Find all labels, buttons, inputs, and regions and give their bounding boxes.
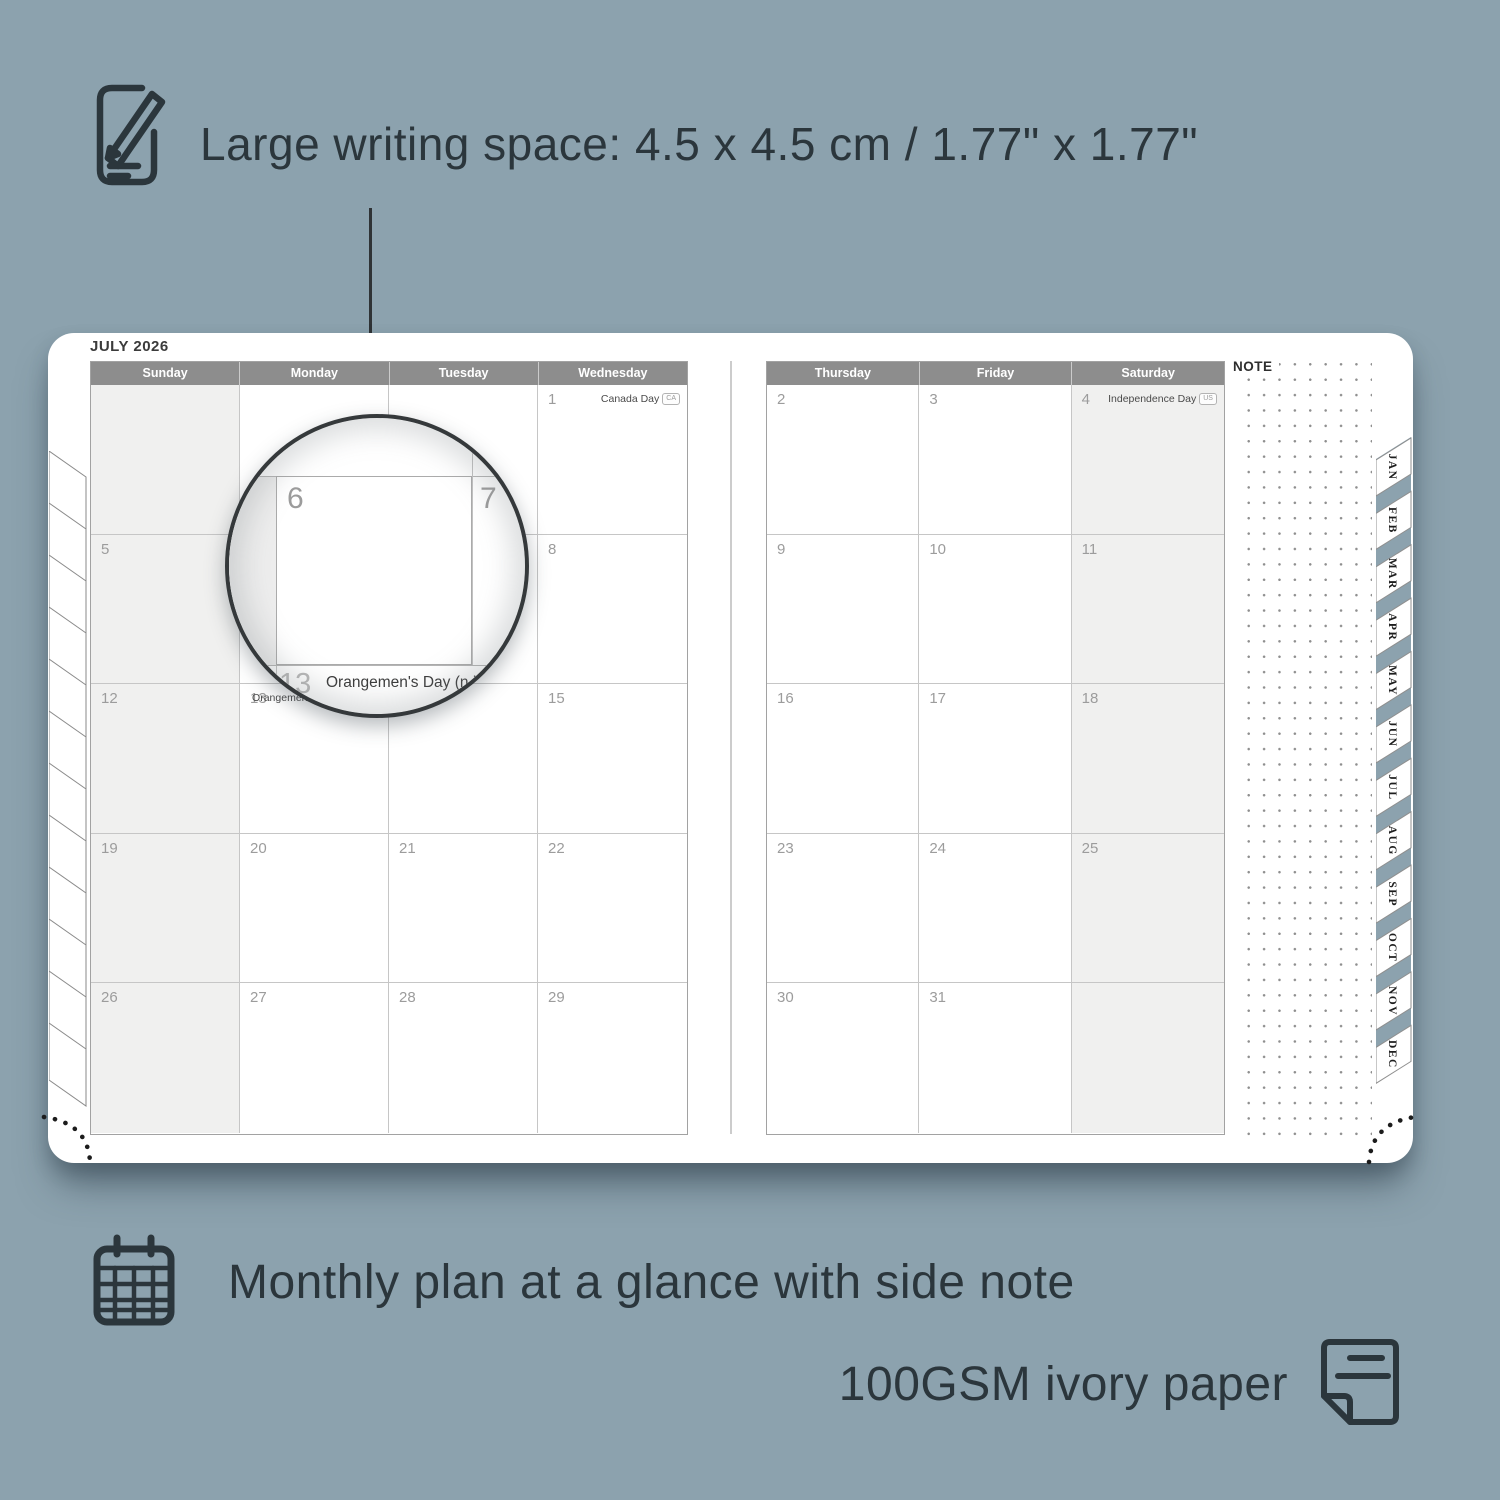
calendar-cell: 9 <box>767 535 919 685</box>
day-number: 12 <box>101 690 118 707</box>
country-badge: CA <box>662 393 680 405</box>
day-number: 1 <box>548 391 556 408</box>
calendar-cell: 15 <box>538 684 687 834</box>
calendar-cell <box>91 385 240 535</box>
magnified-holiday-label: Orangemen's Day (n.i.) UK <box>326 674 513 692</box>
calendar-cell: 19 <box>91 834 240 984</box>
day-number: 24 <box>929 840 946 857</box>
calendar-cell: 11 <box>1072 535 1224 685</box>
month-tab-label: JUN <box>1386 721 1398 748</box>
calendar-cell: 27 <box>240 983 389 1133</box>
magnified-grid-line <box>229 665 525 666</box>
calendar-body: 234Independence DayUS9101116171823242530… <box>767 385 1224 1133</box>
pencil-notepad-icon <box>86 78 186 190</box>
day-header-tuesday: Tuesday <box>390 362 539 385</box>
day-number: 11 <box>1082 541 1098 558</box>
month-tab-label: SEP <box>1386 881 1398 907</box>
magnifier-circle: 6 7 13 Orangemen's Day (n.i.) UK <box>225 414 529 718</box>
calendar-icon <box>84 1232 184 1332</box>
holiday-label: Canada DayCA <box>601 393 680 405</box>
magnified-weekend-shade <box>229 476 276 666</box>
month-tab-label: DEC <box>1386 1040 1398 1069</box>
calendar-cell: 16 <box>767 684 919 834</box>
paper-sheet-icon <box>1316 1336 1402 1428</box>
month-tab-label: MAY <box>1386 665 1398 696</box>
month-title: JULY 2026 <box>90 338 169 355</box>
calendar-cell: 22 <box>538 834 687 984</box>
day-header-saturday: Saturday <box>1072 362 1224 385</box>
calendar-grid-right: ThursdayFridaySaturday 234Independence D… <box>766 361 1225 1135</box>
page-edge-hatching <box>49 451 89 1111</box>
calendar-cell: 1Canada DayCA <box>538 385 687 535</box>
planner-page: JULY 2026 SundayMondayTuesdayWednesday 1… <box>48 333 1413 1163</box>
day-number: 17 <box>929 690 946 707</box>
calendar-cell: 12 <box>91 684 240 834</box>
monthly-plan-caption: Monthly plan at a glance with side note <box>228 1232 1075 1332</box>
day-header-friday: Friday <box>920 362 1073 385</box>
day-number: 8 <box>548 541 556 558</box>
calendar-cell: 3 <box>919 385 1071 535</box>
day-number: 25 <box>1082 840 1099 857</box>
day-number: 19 <box>101 840 118 857</box>
day-number: 4 <box>1082 391 1090 408</box>
day-header-row: ThursdayFridaySaturday <box>767 362 1224 385</box>
calendar-cell: 5 <box>91 535 240 685</box>
day-header-row: SundayMondayTuesdayWednesday <box>91 362 687 385</box>
writing-space-outline <box>276 476 472 665</box>
day-header-thursday: Thursday <box>767 362 920 385</box>
day-number: 10 <box>929 541 946 558</box>
calendar-cell: 10 <box>919 535 1071 685</box>
calendar-cell: 20 <box>240 834 389 984</box>
day-number: 21 <box>399 840 416 857</box>
day-number: 30 <box>777 989 794 1006</box>
month-tab-label: MAR <box>1386 558 1398 590</box>
note-label: NOTE <box>1233 359 1279 376</box>
day-number: 5 <box>101 541 109 558</box>
calendar-cell: 23 <box>767 834 919 984</box>
month-tab-label: APR <box>1386 613 1398 641</box>
calendar-cell: 24 <box>919 834 1071 984</box>
calendar-cell: 28 <box>389 983 538 1133</box>
day-header-sunday: Sunday <box>91 362 240 385</box>
day-number: 9 <box>777 541 785 558</box>
day-number: 20 <box>250 840 267 857</box>
day-number: 16 <box>777 690 794 707</box>
calendar-cell: 26 <box>91 983 240 1133</box>
day-header-wednesday: Wednesday <box>539 362 687 385</box>
month-tab-label: OCT <box>1386 933 1398 962</box>
day-header-monday: Monday <box>240 362 389 385</box>
holiday-text: Canada Day <box>601 393 659 405</box>
day-number: 23 <box>777 840 794 857</box>
calendar-cell: 8 <box>538 535 687 685</box>
calendar-cell: 31 <box>919 983 1071 1133</box>
month-tab-label: NOV <box>1386 986 1398 1016</box>
paper-caption: 100GSM ivory paper <box>839 1338 1288 1430</box>
calendar-cell: 21 <box>389 834 538 984</box>
product-image: Large writing space: 4.5 x 4.5 cm / 1.77… <box>0 0 1500 1500</box>
day-number: 22 <box>548 840 565 857</box>
month-tab-strip: JANFEBMARAPRMAYJUNJULAUGSEPOCTNOVDEC <box>1376 430 1416 1092</box>
day-number: 18 <box>1082 690 1099 707</box>
country-badge: UK <box>491 676 514 690</box>
note-dot-grid <box>1236 363 1372 1137</box>
day-number: 2 <box>777 391 785 408</box>
day-number: 27 <box>250 989 267 1006</box>
month-tab-label: JAN <box>1386 454 1398 481</box>
page-spine <box>730 361 732 1134</box>
calendar-cell: 4Independence DayUS <box>1072 385 1224 535</box>
magnified-day-number: 6 <box>287 482 304 516</box>
calendar-cell: 29 <box>538 983 687 1133</box>
calendar-cell: 18 <box>1072 684 1224 834</box>
writing-space-caption: Large writing space: 4.5 x 4.5 cm / 1.77… <box>200 96 1198 192</box>
day-number: 15 <box>548 690 565 707</box>
month-tab-label: JUL <box>1386 774 1398 800</box>
day-number: 29 <box>548 989 565 1006</box>
month-tab-label: FEB <box>1386 507 1398 534</box>
calendar-cell: 25 <box>1072 834 1224 984</box>
calendar-cell: 17 <box>919 684 1071 834</box>
holiday-text: Orangemen's Day (n.i.) <box>326 674 486 692</box>
calendar-cell: 2 <box>767 385 919 535</box>
day-number: 3 <box>929 391 937 408</box>
magnified-day-number: 13 <box>279 668 311 701</box>
month-tab-label: AUG <box>1386 826 1398 856</box>
magnified-day-number: 7 <box>480 482 497 516</box>
day-number: 31 <box>929 989 946 1006</box>
holiday-text: Independence Day <box>1108 393 1196 405</box>
calendar-cell: 30 <box>767 983 919 1133</box>
holiday-label: Independence DayUS <box>1108 393 1217 405</box>
calendar-cell <box>1072 983 1224 1133</box>
country-badge: US <box>1199 393 1217 405</box>
day-number: 28 <box>399 989 416 1006</box>
day-number: 26 <box>101 989 118 1006</box>
magnified-grid-line <box>472 418 473 666</box>
